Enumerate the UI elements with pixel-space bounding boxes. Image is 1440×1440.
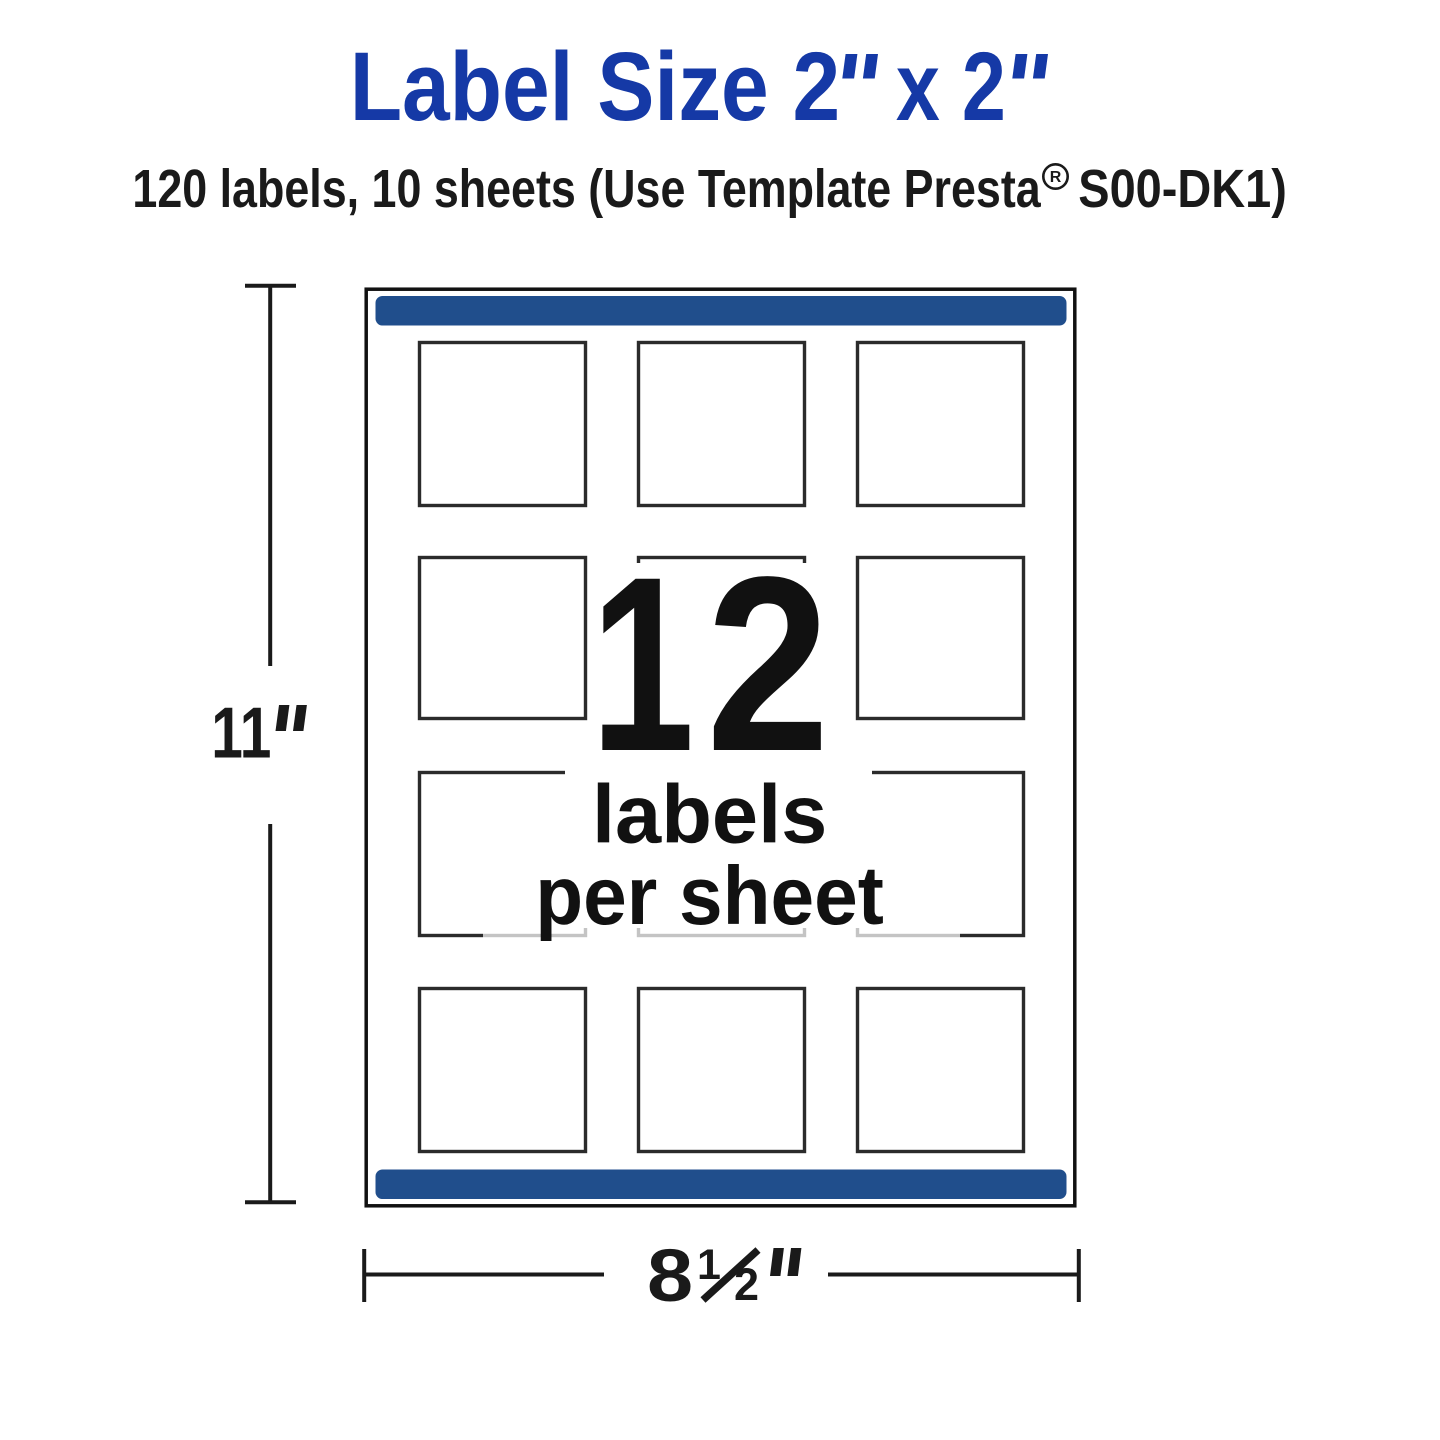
- svg-text:Label Size 2: Label Size 2: [350, 33, 840, 141]
- svg-text:11: 11: [211, 692, 271, 773]
- svg-text:2: 2: [734, 1259, 759, 1310]
- svg-text:x 2: x 2: [896, 32, 1006, 141]
- svg-text:8: 8: [647, 1234, 693, 1317]
- svg-text:120 labels, 10 sheets (Use Tem: 120 labels, 10 sheets (Use Template Pres…: [132, 158, 1041, 219]
- svg-text:2: 2: [706, 524, 830, 803]
- svg-text:S00-DK1): S00-DK1): [1078, 158, 1287, 219]
- svg-text:R: R: [1050, 169, 1062, 186]
- svg-text:per sheet: per sheet: [535, 850, 884, 943]
- svg-text:labels: labels: [592, 768, 827, 861]
- svg-text:1: 1: [697, 1241, 721, 1289]
- svg-text:1: 1: [591, 525, 695, 803]
